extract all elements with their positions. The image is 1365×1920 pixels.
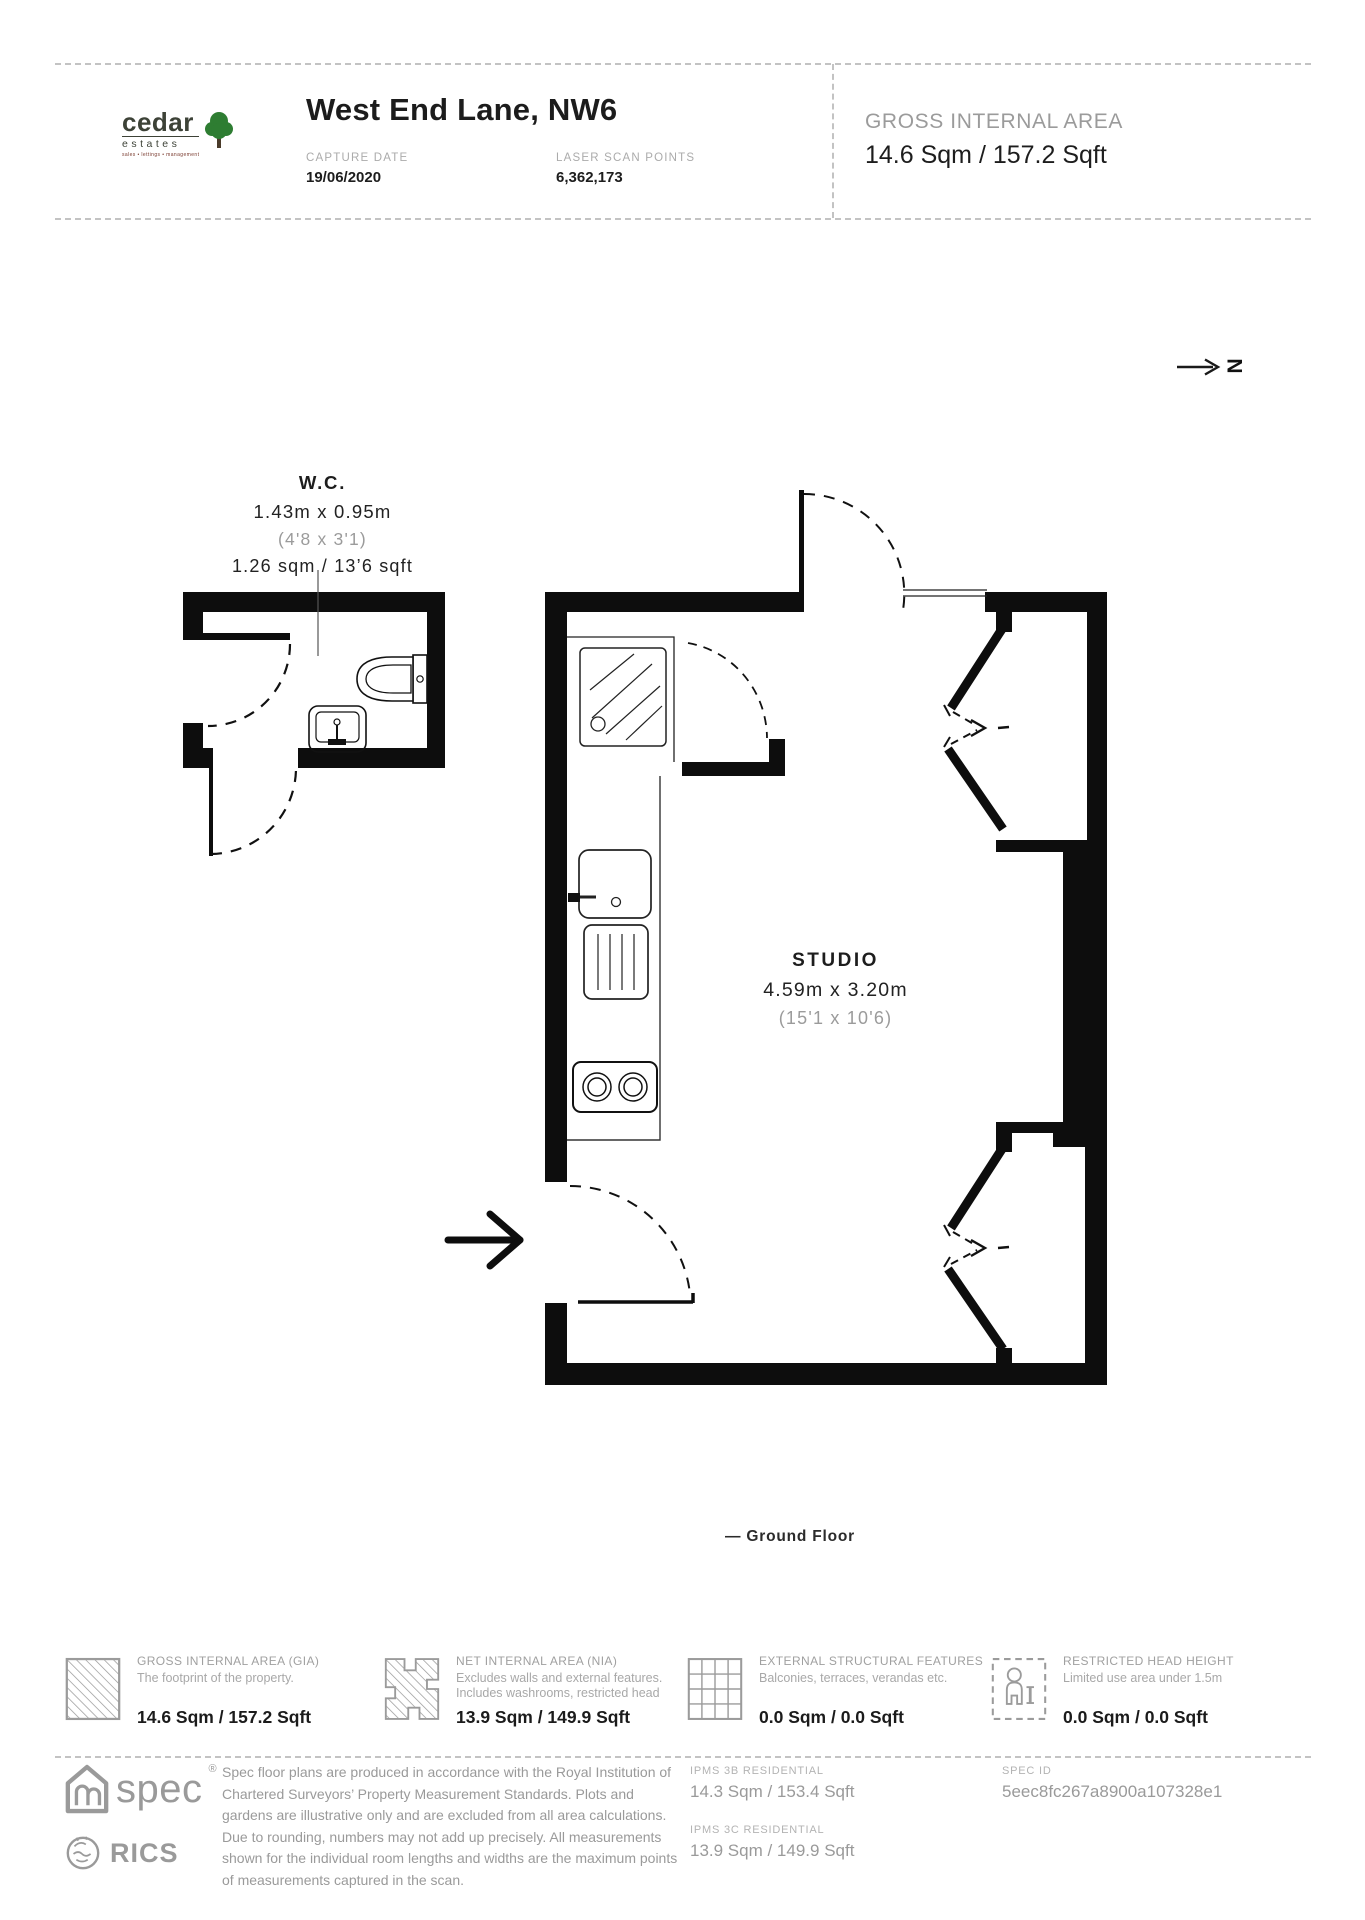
north-label: N bbox=[1223, 358, 1246, 373]
legend-item-rhh: RESTRICTED HEAD HEIGHT Limited use area … bbox=[990, 1654, 1333, 1728]
legend-desc: Limited use area under 1.5m bbox=[1063, 1671, 1333, 1686]
kitchen-sink-icon bbox=[568, 850, 651, 918]
legend-item-gia: GROSS INTERNAL AREA (GIA) The footprint … bbox=[64, 1654, 407, 1728]
legend-title: RESTRICTED HEAD HEIGHT bbox=[1063, 1654, 1333, 1668]
studio-room-name: STUDIO bbox=[713, 950, 958, 972]
legend-value: 0.0 Sqm / 0.0 Sqft bbox=[759, 1707, 1029, 1728]
ipms-block: IPMS 3B RESIDENTIAL 14.3 Sqm / 153.4 Sqf… bbox=[690, 1765, 854, 1861]
toilet-icon bbox=[357, 655, 427, 703]
floorplan-page: cedar estates sales • lettings • managem… bbox=[0, 0, 1365, 1920]
shower-icon bbox=[567, 637, 785, 776]
wc-room-name: W.C. bbox=[200, 472, 445, 494]
wc-basin-icon bbox=[309, 706, 366, 752]
ipms-3c-label: IPMS 3C RESIDENTIAL bbox=[690, 1824, 854, 1836]
spec-brand-text: spec bbox=[116, 1767, 203, 1812]
kitchen-counter bbox=[567, 776, 660, 1140]
restricted-head-height-icon bbox=[990, 1654, 1048, 1724]
ipms-3b-label: IPMS 3B RESIDENTIAL bbox=[690, 1765, 854, 1777]
nia-hatch-icon bbox=[383, 1654, 441, 1724]
legend-title: EXTERNAL STRUCTURAL FEATURES bbox=[759, 1654, 1029, 1668]
spec-logo: spec ® bbox=[64, 1763, 217, 1815]
wc-door-swings bbox=[208, 644, 296, 854]
floor-caption: — Ground Floor bbox=[690, 1528, 890, 1546]
spec-id-label: SPEC ID bbox=[1002, 1765, 1222, 1777]
legend-item-esf: EXTERNAL STRUCTURAL FEATURES Balconies, … bbox=[686, 1654, 1029, 1728]
wc-dim-imperial: (4'8 x 3'1) bbox=[200, 529, 445, 550]
ipms-3b-value: 14.3 Sqm / 153.4 Sqft bbox=[690, 1782, 854, 1802]
entrance-arrow-icon bbox=[448, 1214, 520, 1266]
rics-brand-text: RICS bbox=[110, 1838, 179, 1869]
grid-icon bbox=[686, 1654, 744, 1724]
disclaimer-text: Spec floor plans are produced in accorda… bbox=[222, 1762, 682, 1891]
wc-room-label: W.C. 1.43m x 0.95m (4'8 x 3'1) 1.26 sqm … bbox=[200, 472, 445, 577]
legend-title: GROSS INTERNAL AREA (GIA) bbox=[137, 1654, 407, 1668]
wc-room-walls bbox=[183, 592, 445, 856]
legend-value: 14.6 Sqm / 157.2 Sqft bbox=[137, 1707, 407, 1728]
floor-plan-drawing: N bbox=[0, 0, 1365, 1920]
studio-dim-imperial: (15'1 x 10'6) bbox=[713, 1008, 958, 1029]
drainer-icon bbox=[584, 925, 648, 999]
studio-dim-metric: 4.59m x 3.20m bbox=[713, 979, 958, 1002]
studio-entry-doors bbox=[570, 494, 987, 1303]
spec-id-value: 5eec8fc267a8900a107328e1 bbox=[1002, 1782, 1222, 1802]
wc-dim-metric: 1.43m x 0.95m bbox=[200, 501, 445, 523]
rics-lion-icon bbox=[64, 1833, 102, 1873]
hob-icon bbox=[573, 1062, 657, 1112]
legend-desc: The footprint of the property. bbox=[137, 1671, 407, 1686]
studio-room-walls bbox=[545, 490, 1107, 1385]
north-arrow-icon: N bbox=[1177, 358, 1246, 374]
legend-item-nia: NET INTERNAL AREA (NIA) Excludes walls a… bbox=[383, 1654, 726, 1728]
gia-hatch-icon bbox=[64, 1654, 122, 1724]
studio-room-label: STUDIO 4.59m x 3.20m (15'1 x 10'6) bbox=[713, 950, 958, 1029]
spec-id-block: SPEC ID 5eec8fc267a8900a107328e1 bbox=[1002, 1765, 1222, 1802]
wc-area: 1.26 sqm / 13’6 sqft bbox=[200, 556, 445, 577]
legend-value: 0.0 Sqm / 0.0 Sqft bbox=[1063, 1707, 1333, 1728]
rics-logo: RICS bbox=[64, 1833, 179, 1873]
ipms-3c-value: 13.9 Sqm / 149.9 Sqft bbox=[690, 1841, 854, 1861]
spec-house-icon bbox=[64, 1763, 110, 1815]
legend-desc: Balconies, terraces, verandas etc. bbox=[759, 1671, 1029, 1686]
spec-registered-mark: ® bbox=[209, 1763, 217, 1775]
